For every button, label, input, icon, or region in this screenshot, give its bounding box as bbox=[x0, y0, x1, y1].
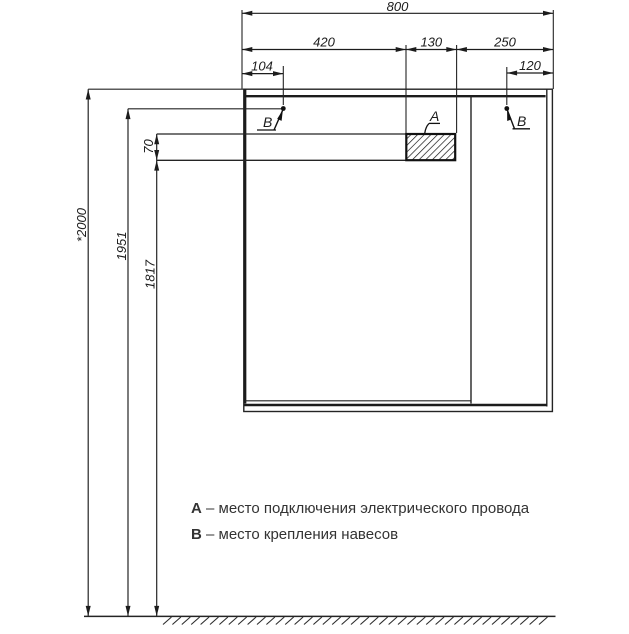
svg-text:70: 70 bbox=[141, 139, 156, 154]
svg-text:В – место крепления навесов: В – место крепления навесов bbox=[191, 526, 398, 543]
svg-text:250: 250 bbox=[493, 35, 516, 50]
svg-text:*2000: *2000 bbox=[74, 207, 89, 242]
svg-text:104: 104 bbox=[251, 59, 273, 74]
svg-text:А – место подключения электрич: А – место подключения электрического про… bbox=[191, 500, 530, 517]
svg-text:1951: 1951 bbox=[114, 232, 129, 261]
svg-text:120: 120 bbox=[519, 58, 541, 73]
svg-text:420: 420 bbox=[313, 35, 335, 50]
svg-text:800: 800 bbox=[387, 0, 409, 14]
svg-text:130: 130 bbox=[420, 35, 442, 50]
svg-text:А: А bbox=[429, 108, 439, 124]
svg-text:В: В bbox=[263, 114, 272, 130]
svg-text:1817: 1817 bbox=[143, 259, 158, 289]
svg-text:В: В bbox=[517, 113, 526, 129]
